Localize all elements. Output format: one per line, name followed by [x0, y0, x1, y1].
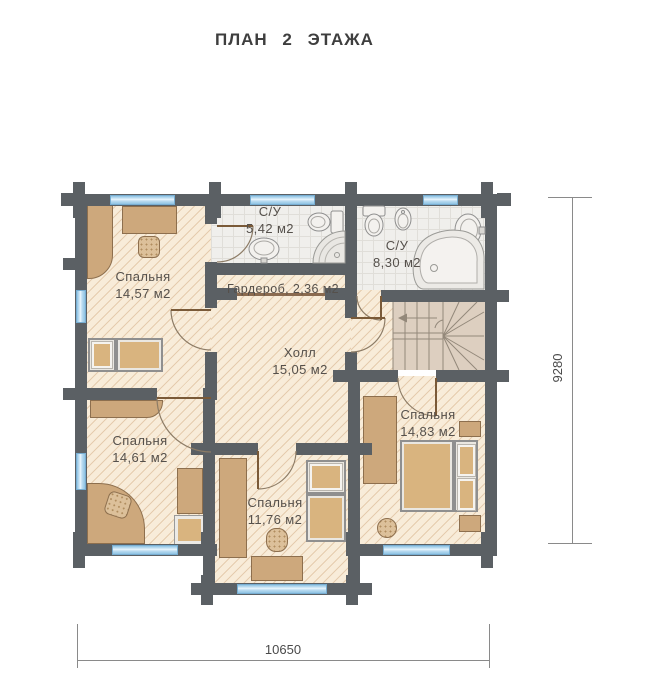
- nightstand: [459, 515, 481, 532]
- dimension-label-vertical: 9280: [550, 333, 566, 403]
- room-floor-stairs: [393, 302, 485, 370]
- room-label-bedroom-bottom-center: Спальня 11,76 м2: [215, 494, 335, 528]
- dimension-tick: [77, 624, 78, 668]
- room-label-bedroom-bottom-left: Спальня 14,61 м2: [80, 432, 200, 466]
- window: [237, 584, 327, 594]
- dimension-tick: [548, 197, 592, 198]
- interior-wall: [209, 443, 258, 455]
- log-end: [350, 583, 372, 595]
- room-label-hall: Холл 15,05 м2: [240, 344, 360, 378]
- dimension-line-vertical: [572, 197, 573, 543]
- desk: [122, 206, 177, 234]
- log-end: [191, 583, 215, 595]
- log-end: [356, 443, 372, 455]
- log-end: [481, 182, 493, 218]
- log-end: [201, 532, 213, 556]
- exterior-wall: [75, 194, 87, 556]
- chair: [138, 236, 160, 258]
- window: [110, 195, 175, 205]
- double-bed: [400, 440, 478, 512]
- dimension-line-horizontal: [77, 660, 489, 661]
- log-end: [345, 182, 357, 218]
- log-end: [497, 193, 511, 206]
- log-end: [481, 532, 493, 568]
- dresser: [177, 468, 203, 514]
- floor-plan-page: ПЛАН 2 ЭТАЖА: [0, 0, 647, 700]
- room-label-bathroom-small: С/У 5,42 м2: [210, 203, 330, 237]
- interior-wall: [203, 388, 215, 544]
- desk: [251, 556, 303, 581]
- dimension-label-horizontal: 10650: [233, 642, 333, 657]
- log-end: [473, 290, 509, 302]
- page-title: ПЛАН 2 ЭТАЖА: [215, 30, 374, 50]
- window: [423, 195, 458, 205]
- interior-wall: [87, 388, 157, 400]
- room-label-bedroom-bottom-right: Спальня 14,83 м2: [368, 406, 488, 440]
- chair: [266, 528, 288, 552]
- pouf: [377, 518, 397, 538]
- dimension-tick: [489, 624, 490, 668]
- log-end: [61, 193, 75, 206]
- room-label-bathroom-large: С/У 8,30 м2: [337, 237, 457, 271]
- bed: [88, 338, 163, 372]
- room-label-wardrobe: Гардероб, 2,36 м2: [215, 280, 351, 298]
- log-end: [346, 532, 358, 556]
- log-end: [73, 532, 85, 568]
- shelf: [90, 400, 163, 418]
- log-end: [63, 388, 87, 400]
- dimension-tick: [548, 543, 592, 544]
- interior-wall: [211, 263, 357, 275]
- window: [383, 545, 450, 555]
- log-end: [473, 370, 509, 382]
- interior-wall: [348, 370, 360, 544]
- window: [112, 545, 178, 555]
- room-label-bedroom-top-left: Спальня 14,57 м2: [83, 268, 203, 302]
- tv-stand: [175, 516, 204, 544]
